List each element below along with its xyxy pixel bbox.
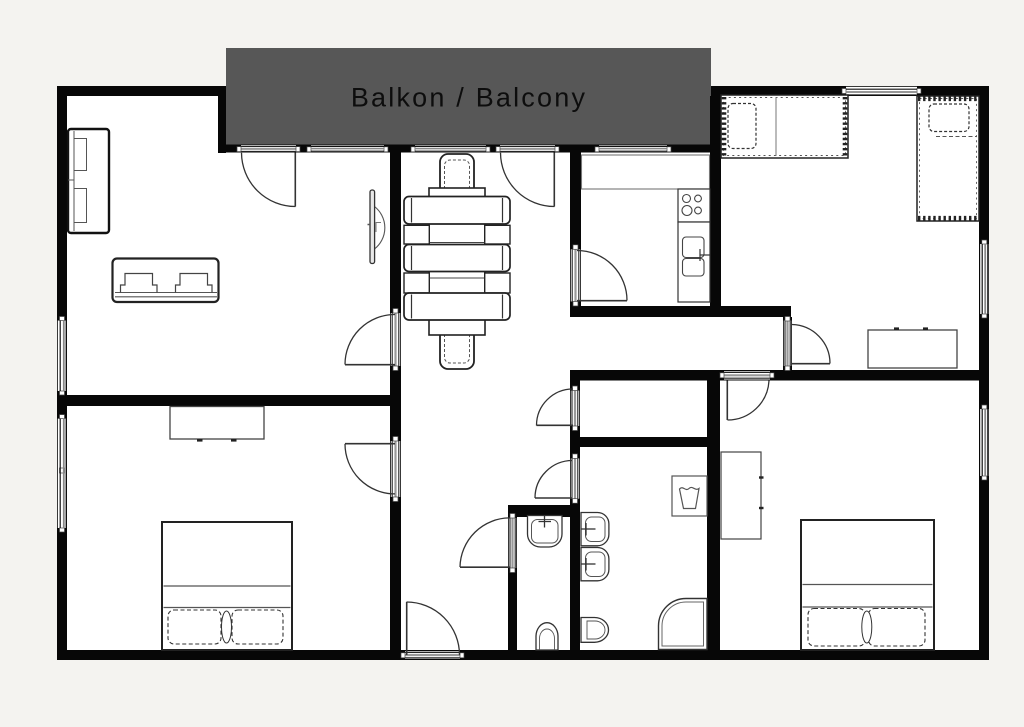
svg-text:Balkon / Balcony: Balkon / Balcony: [351, 83, 587, 113]
